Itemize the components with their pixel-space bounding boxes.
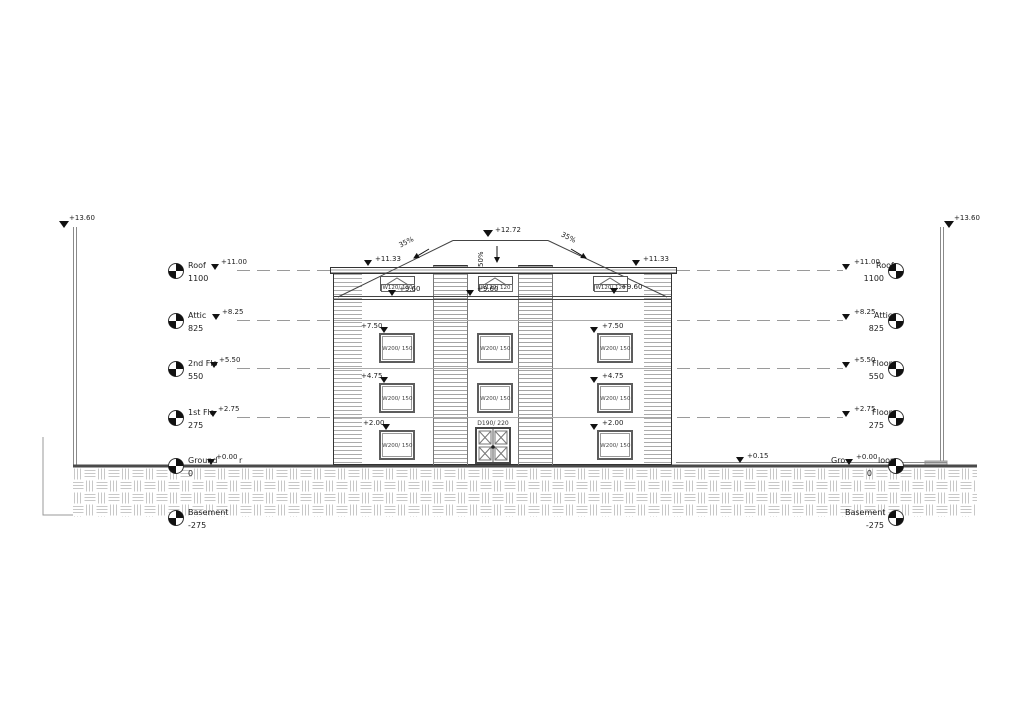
attic-sill-marker	[388, 290, 396, 296]
window-tag: W200/ 150	[382, 442, 412, 448]
window: W200/ 150	[379, 383, 415, 413]
eave-elevation-marker	[632, 260, 640, 266]
chimney-left	[433, 265, 468, 465]
attic-sill-marker	[466, 290, 474, 296]
right-slope-arrow	[571, 249, 586, 258]
level-elevation: +8.25	[854, 308, 875, 316]
window-head-marker	[380, 327, 388, 333]
level-name: Basement	[188, 508, 228, 517]
level-value: 1100	[852, 274, 884, 283]
door-tag: D190/ 220	[468, 420, 518, 427]
datum-icon	[888, 510, 904, 526]
datum-icon	[888, 458, 904, 474]
level-name: Roof	[188, 261, 206, 270]
level-name-suffix: r	[239, 456, 242, 465]
level-marker	[207, 459, 215, 465]
window-head-marker	[590, 377, 598, 383]
level-value: 825	[188, 324, 203, 333]
level-value: 550	[852, 372, 884, 381]
attic-sill-label: +9.60	[399, 285, 420, 293]
attic-sill-label: +9.60	[621, 283, 642, 291]
window-head-label: +2.00	[602, 419, 623, 427]
door-handle	[491, 445, 495, 449]
window-head-label: +7.50	[602, 322, 623, 330]
level-marker	[209, 411, 217, 417]
attic-sill-label: +9.60	[477, 285, 498, 293]
level-elevation: +11.00	[221, 258, 247, 266]
window: W200/ 150	[597, 430, 633, 460]
window-tag: W200/ 150	[480, 345, 510, 351]
level-elevation: +2.75	[218, 405, 239, 413]
level-name-prefix: Gro	[831, 456, 845, 465]
level-value: 0	[840, 469, 872, 478]
level-name: Basement	[845, 508, 885, 517]
level-value: 1100	[188, 274, 208, 283]
datum-icon	[888, 313, 904, 329]
window-head-marker	[380, 377, 388, 383]
window-head-marker	[590, 327, 598, 333]
window-tag: W200/ 150	[600, 345, 630, 351]
grade-label: +0.15	[747, 452, 768, 460]
level-elevation: +8.25	[222, 308, 243, 316]
stake-elevation-marker	[59, 221, 69, 228]
eave-elevation-label: +11.33	[643, 255, 669, 263]
level-marker	[210, 362, 218, 368]
datum-icon	[168, 313, 184, 329]
window-tag: W200/ 150	[382, 395, 412, 401]
window-tag: W200/ 150	[382, 345, 412, 351]
stake-elevation-marker	[944, 221, 954, 228]
stake-base-pad	[925, 461, 947, 466]
entrance-door	[475, 427, 511, 464]
window: W200/ 150	[379, 430, 415, 460]
window: W200/ 150	[379, 333, 415, 363]
level-value: 825	[852, 324, 884, 333]
level-name: Attic	[188, 311, 206, 320]
window-tag: W200/ 150	[600, 442, 630, 448]
datum-icon	[168, 510, 184, 526]
level-value: 0	[188, 469, 193, 478]
siding-band-right	[644, 274, 671, 465]
window: W200/ 150	[597, 383, 633, 413]
window-tag: W200/ 150	[480, 395, 510, 401]
level-marker	[212, 314, 220, 320]
stake-elevation-label: +13.60	[954, 214, 980, 222]
roof-fascia-band	[330, 267, 677, 274]
window-tag: W200/ 150	[600, 395, 630, 401]
window: W200/ 150	[477, 333, 513, 363]
roof-slope-right-label: 35%	[560, 231, 587, 250]
elevation-drawing: W120/ 120 W120/ 120 W120/ 120 W200/ 150 …	[0, 0, 1024, 724]
left-slope-arrow	[414, 249, 429, 258]
datum-icon	[888, 410, 904, 426]
level-marker	[842, 362, 850, 368]
datum-icon	[168, 410, 184, 426]
level-elevation: +5.50	[219, 356, 240, 364]
level-marker	[842, 314, 850, 320]
level-marker	[845, 459, 853, 465]
ridge-elevation-marker	[483, 230, 493, 237]
level-value: 550	[188, 372, 203, 381]
datum-icon	[168, 361, 184, 377]
eave-elevation-label: +11.33	[375, 255, 401, 263]
ridge-elevation-label: +12.72	[495, 226, 521, 234]
window-head-label: +4.75	[602, 372, 623, 380]
datum-icon	[168, 458, 184, 474]
datum-icon	[168, 263, 184, 279]
level-value: -275	[188, 521, 206, 530]
window-head-marker	[382, 424, 390, 430]
window-head-marker	[590, 424, 598, 430]
datum-icon	[888, 263, 904, 279]
roof-slope-center-label: 50%	[477, 245, 485, 267]
level-marker	[211, 264, 219, 270]
level-value: 275	[852, 421, 884, 430]
stake-elevation-label: +13.60	[69, 214, 95, 222]
level-value: 275	[188, 421, 203, 430]
level-value: -275	[852, 521, 884, 530]
level-elevation: +0.00	[216, 453, 237, 461]
level-marker	[842, 411, 850, 417]
roof-slope-left-label: 35%	[398, 231, 425, 250]
grade-marker	[736, 457, 744, 463]
eave-elevation-marker	[364, 260, 372, 266]
level-elevation: +0.00	[856, 453, 877, 461]
level-marker	[842, 264, 850, 270]
attic-sill-marker	[610, 288, 618, 294]
chimney-right	[518, 265, 553, 465]
window: W200/ 150	[477, 383, 513, 413]
datum-icon	[888, 361, 904, 377]
window: W200/ 150	[597, 333, 633, 363]
siding-band-left	[334, 274, 362, 465]
